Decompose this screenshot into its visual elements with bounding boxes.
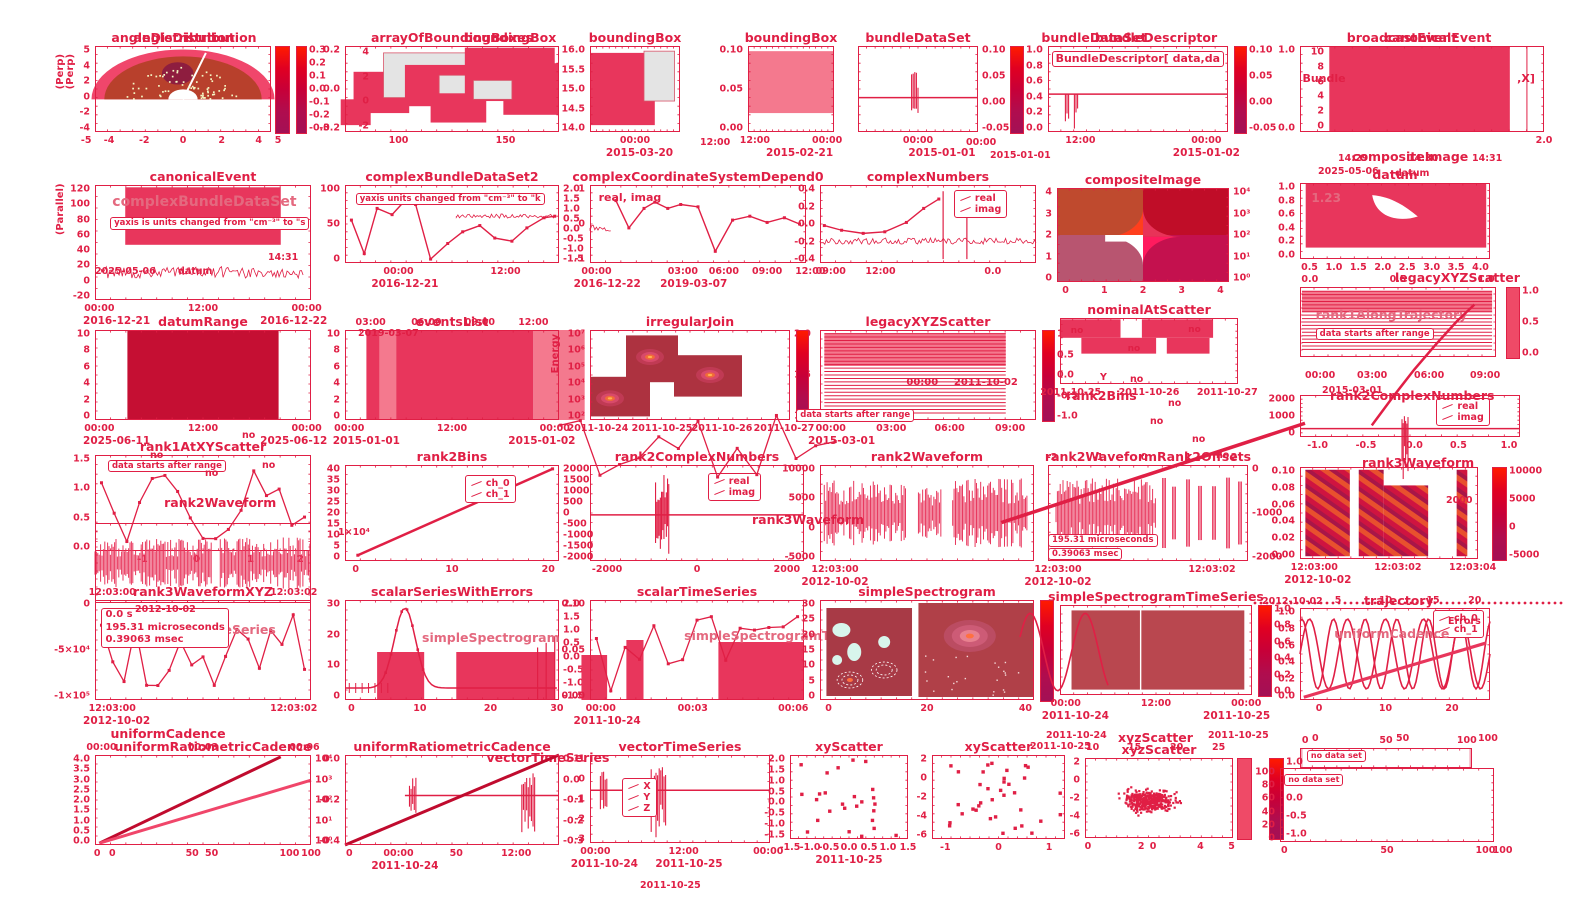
data-rect (473, 80, 512, 99)
speckle (948, 676, 949, 677)
scatter-point (1160, 805, 1162, 807)
speckle (188, 86, 190, 88)
data-rect (644, 51, 675, 101)
ytick: 2 (333, 394, 340, 405)
cyan-patch (847, 643, 861, 661)
ytick: 0 (333, 552, 340, 563)
xtick: 0 (995, 842, 1002, 853)
xtick: 12:03:00 (811, 564, 858, 575)
speckle (176, 72, 178, 74)
colorbar-tick: 0.0 (1522, 348, 1539, 359)
annotation-text: Bundle (1302, 72, 1345, 85)
data-rect (1081, 338, 1156, 354)
ylabel: Energy (550, 334, 561, 373)
ytick: 14.5 (562, 103, 585, 114)
stray-label: 2025-05-06 (95, 266, 156, 277)
ytick: 8 (83, 345, 90, 356)
scatter-point (1134, 796, 1136, 798)
scatter-point (847, 830, 850, 833)
xtick: 2 (1140, 285, 1147, 296)
ytick-right: 10³ (1233, 208, 1250, 219)
stray-label: 12:00 (700, 137, 730, 148)
scatter-point (1150, 796, 1152, 798)
stray-label: 2000 (1446, 495, 1472, 506)
scatter-point (1158, 800, 1160, 802)
speckle (141, 96, 143, 98)
ytick: 0.05 (562, 645, 585, 656)
annotation-text: uniformCadence (1334, 626, 1449, 641)
speckle (213, 94, 215, 96)
ytick: 0.2 (1278, 236, 1295, 247)
ytick-right: -1500 (563, 541, 593, 552)
legend-entry: Y (628, 792, 650, 803)
speckle (993, 691, 994, 692)
xtick: 0 (1281, 845, 1288, 856)
speckle (150, 74, 152, 76)
legend: ch_0ch_1 (465, 475, 516, 503)
axes-frame (591, 756, 770, 843)
scatter-point (1144, 794, 1146, 796)
scatter-point (1125, 799, 1127, 801)
scatter-point (1014, 827, 1017, 830)
scatter-point (1118, 797, 1120, 799)
marker (123, 680, 126, 683)
xtick: -1.5 (780, 842, 801, 853)
xtick-top: 50 (1379, 735, 1392, 746)
colorbar-tick: 5000 (1509, 494, 1535, 505)
xtick: 00:00 (1191, 135, 1221, 146)
xtick: 4 (1217, 285, 1224, 296)
marker (461, 230, 464, 233)
scatter-point (1170, 804, 1172, 806)
stray-label: 00:00 (966, 137, 996, 148)
ytick: 1.5 (73, 454, 90, 465)
marker (795, 457, 798, 460)
xtick: 0 (346, 848, 353, 859)
xtick: 1.0 (880, 842, 897, 853)
scatter-point (1154, 794, 1156, 796)
line-series (1001, 423, 1305, 522)
marker (411, 624, 414, 627)
xtick: 20 (1445, 703, 1458, 714)
ytick-right: 0.0 (563, 774, 580, 785)
plot-xyScatter (790, 755, 908, 839)
speckle (218, 90, 220, 92)
xaxis-date: 2016-12-21 (371, 278, 438, 290)
marker (823, 224, 826, 227)
blob (708, 374, 712, 376)
scatter-point (860, 800, 863, 803)
marker (609, 689, 612, 692)
ytick: 0.2 (1278, 674, 1295, 685)
marker (598, 474, 601, 477)
scatter-point (1059, 791, 1062, 794)
scatter-point (1002, 777, 1005, 780)
stray-label: 15 (1128, 742, 1141, 753)
stray-label: 14:31 (1472, 153, 1502, 164)
scatter-point (990, 762, 993, 765)
speckle (172, 76, 174, 78)
xtick: 00:00 (1051, 698, 1081, 709)
scatter-point (1127, 791, 1129, 793)
stray-label: 2011-10-24 (1046, 730, 1107, 741)
speckle (146, 88, 148, 90)
data-rect (1167, 338, 1210, 354)
marker (553, 215, 556, 218)
noise-trace (456, 214, 554, 218)
marker (657, 435, 660, 438)
panel-title-legacyXYZScatter: legacyXYZScatter (866, 314, 991, 329)
speckle (133, 98, 135, 100)
marker (422, 668, 425, 671)
scatter-point (841, 802, 844, 805)
scatter-point (1125, 802, 1127, 804)
speckle (165, 90, 167, 92)
colorbar-tick: 0.2 (1026, 107, 1043, 118)
ytick: 60 (77, 229, 90, 240)
speckle (210, 78, 212, 80)
stray-label: no (1192, 434, 1205, 445)
stray-label: legacyXYZScatter (1395, 270, 1520, 285)
xtick: 10 (413, 703, 426, 714)
ytick-inner: 4 (1317, 91, 1324, 102)
scatter-point (1165, 799, 1167, 801)
plot-boundingBox (748, 46, 834, 132)
stray-label: rank2Bins (1066, 388, 1137, 403)
ytick: 4 (333, 378, 340, 389)
stray-label: 2015-01-01 (990, 150, 1051, 161)
panel-title-angleDistribution: angleDistribution (133, 30, 256, 45)
stray-label: Errors (1448, 616, 1481, 627)
marker (376, 207, 379, 210)
ytick: 0.05 (720, 84, 743, 95)
ytick: 0.00 (562, 691, 585, 702)
scatter-point (871, 788, 874, 791)
speckle (223, 89, 225, 91)
marker (716, 476, 719, 479)
marker (163, 474, 166, 477)
marker (724, 659, 727, 662)
speckle (207, 95, 209, 97)
stray-label: 2012-10-02 (1262, 596, 1323, 607)
xaxis-date: 2012-10-02 (1024, 576, 1091, 588)
scatter-point (1137, 800, 1139, 802)
colorbar-tick: -5000 (1509, 550, 1539, 561)
speckle (155, 76, 157, 78)
scatter-point (1136, 806, 1138, 808)
ytick: 5000 (789, 493, 815, 504)
data-rect (1329, 46, 1510, 132)
speckle (956, 681, 957, 682)
stray-label: 1×10⁴ (338, 527, 370, 538)
ytick: 0.0 (798, 219, 815, 230)
ytick: 40 (327, 464, 340, 475)
marker (905, 221, 908, 224)
scatter-point (1135, 791, 1137, 793)
trajectory-dot (1356, 602, 1359, 605)
marker (579, 419, 582, 422)
marker (643, 207, 646, 210)
scatter-point (1019, 808, 1022, 811)
xtick: 100 (301, 848, 321, 859)
ytick-right: 1.5 (563, 612, 580, 623)
stray-label: datum (1395, 168, 1429, 179)
axes-frame (791, 756, 908, 839)
xaxis-date: 2016-12-22 (574, 278, 641, 290)
plot-diagonal-decor (995, 420, 1305, 528)
scatter-point (1150, 805, 1152, 807)
panel-title-xyScatter: xyScatter (815, 739, 883, 754)
xtick: 3 (1178, 285, 1185, 296)
ytick: -6 (1069, 829, 1080, 840)
ytick: 0.00 (720, 123, 743, 134)
legend-label: imag (1457, 412, 1483, 423)
ytick: -1.0 (764, 819, 785, 830)
scatter-point (1059, 813, 1062, 816)
annotation-text: no (1071, 326, 1084, 336)
speckle (235, 96, 237, 98)
colorbar (1258, 605, 1272, 697)
stray-label: 2025-05-06 (1318, 166, 1379, 177)
xtick: 1.0 (1501, 440, 1518, 451)
xtick: -0.5 (819, 842, 840, 853)
marker (493, 237, 496, 240)
ytick: 4 (83, 378, 90, 389)
xtick-top: 12:03:02 (270, 587, 317, 598)
speckle (925, 655, 926, 656)
scatter-point (1132, 804, 1134, 806)
xtick: 4 (1197, 841, 1204, 852)
ytick: 0.0 (768, 797, 785, 808)
scatter-point (989, 817, 992, 820)
axes-frame (933, 756, 1065, 839)
ytick: 0.0 (323, 84, 340, 95)
speckle (202, 75, 204, 77)
scatter-point (825, 771, 828, 774)
marker (666, 207, 669, 210)
xtick: 00:00 (581, 266, 611, 277)
scatter-point (971, 807, 974, 810)
xtick: 00:00 (383, 266, 413, 277)
plot-angleDistribution (95, 46, 271, 132)
xtick: 0 (1062, 285, 1069, 296)
ytick-right: 10⁴ (1233, 187, 1250, 198)
trajectory-dot (1344, 602, 1347, 605)
scatter-point (957, 770, 960, 773)
scatter-point (855, 804, 858, 807)
scatter-point (1130, 786, 1132, 788)
speckle (138, 88, 140, 90)
scatter-point (816, 819, 819, 822)
legend-entry: imag (960, 204, 1001, 215)
scatter-point (1138, 790, 1140, 792)
ytick: 5 (333, 541, 340, 552)
xtick: 10 (1379, 703, 1392, 714)
xtick: 00:00 (586, 703, 616, 714)
speckle (163, 74, 165, 76)
marker (638, 658, 641, 661)
stray-label: 2011-10-25 (1208, 730, 1269, 741)
ytick: 2 (83, 394, 90, 405)
ytick: 0.0 (1278, 250, 1295, 261)
colorbar-tick: 10000 (1509, 466, 1542, 477)
ytick: 80 (77, 214, 90, 225)
blob (648, 356, 652, 358)
panel-title-irregularJoin: irregularJoin (646, 314, 734, 329)
xtick: 5 (275, 135, 282, 146)
trend-line (99, 780, 311, 843)
ytick-right: 10¹ (315, 815, 332, 826)
plot-legacyXYZScatter (820, 330, 1036, 420)
stray-label: no (262, 460, 275, 471)
xtick: 03:00 (876, 423, 906, 434)
cyan-patch (832, 655, 842, 665)
legend-label: ch_1 (486, 489, 510, 500)
plot-uniformRatiometricCadence (95, 755, 311, 845)
speckle (159, 95, 161, 97)
plot-arrayOfBoundingBoxes (345, 46, 559, 132)
ytick-right: 10³ (315, 774, 332, 785)
speckle (955, 657, 956, 658)
xtick: 1.0 (1326, 262, 1343, 273)
ytick-inner: 0 (1317, 121, 1324, 132)
tick-marks (790, 755, 908, 839)
xtick: 100 (1493, 845, 1513, 856)
legend-label: imag (729, 487, 755, 498)
scatter-point (815, 798, 818, 801)
marker (151, 477, 154, 480)
plot-scalarSeriesWithErrors (345, 600, 559, 700)
panel-title-rank2Waveform: rank2Waveform (871, 449, 983, 464)
stray-label: no (205, 468, 218, 479)
stray-label: trajectory (1364, 593, 1434, 608)
xtick: 100 (279, 848, 299, 859)
scatter-point (1148, 798, 1150, 800)
speckle (998, 666, 999, 667)
speckle (967, 656, 968, 657)
spectrogram-block (826, 608, 912, 696)
plot-sine-decor (1020, 608, 1108, 696)
marker (189, 516, 192, 519)
ytick: -0.2 (319, 123, 340, 134)
xtick: 0 (94, 848, 101, 859)
speckle (996, 680, 997, 681)
ytick: -2 (1069, 793, 1080, 804)
xtick: 0.0 (1406, 440, 1423, 451)
panel-title-canonicalEvent: canonicalEvent (1385, 30, 1492, 45)
panel-title-bundleDescriptor: bundleDescriptor (1095, 30, 1217, 45)
marker (796, 615, 799, 618)
xaxis-date: 2011-10-25 (1203, 710, 1270, 722)
scatter-point (1169, 799, 1171, 801)
scatter-point (1145, 797, 1147, 799)
scatter-point (873, 802, 876, 805)
scatter-point (1133, 800, 1135, 802)
stray-label: compositeImage (1352, 149, 1468, 164)
scatter-point (1165, 806, 1167, 808)
data-rect (127, 330, 278, 420)
ytick-right: -2000 (563, 552, 593, 563)
scatter-point (860, 835, 863, 838)
ytick: 10⁶ (568, 345, 585, 356)
ytick: 2000 (1269, 394, 1295, 405)
ytick: 0.8 (1278, 195, 1295, 206)
ytick: 0.8 (1278, 623, 1295, 634)
ytick: 10 (327, 660, 340, 671)
stray-label: 14:31 (268, 252, 298, 263)
scatter-point (1130, 794, 1132, 796)
ytick: 0.0 (73, 542, 90, 553)
plot-rank3Waveform (1300, 467, 1478, 559)
scatter-point (1131, 808, 1133, 810)
scatter-point (1140, 812, 1142, 814)
xtick-top: 100 (1457, 735, 1477, 746)
marker (834, 440, 837, 443)
ytick: 14.0 (562, 123, 585, 134)
stray-label: no (1216, 450, 1229, 461)
marker (510, 240, 513, 243)
colorbar (275, 46, 290, 134)
speckle (194, 87, 196, 89)
xaxis-date: 2012-10-02 (1284, 574, 1351, 586)
scatter-point (1007, 783, 1010, 786)
speckle (925, 671, 926, 672)
colorbar (1492, 467, 1507, 561)
scatter-point (1153, 805, 1155, 807)
xtick: 00:00 (812, 135, 842, 146)
colorbar-tick: 0.5 (1522, 317, 1539, 328)
xtick: 50 (186, 848, 199, 859)
legend-label: Z (643, 803, 650, 814)
ytick: 6 (83, 361, 90, 372)
stray-label: 09:00 (1470, 370, 1500, 381)
legend-line-icon (628, 805, 639, 812)
scatter-point (1002, 794, 1005, 797)
marker (280, 643, 283, 646)
scatter-point (977, 804, 980, 807)
panel-title-bundleDataSet: bundleDataSet (865, 30, 970, 45)
xtick: -1.0 (800, 842, 821, 853)
data-rect (1060, 319, 1121, 337)
xtick: 20 (484, 703, 497, 714)
marker (627, 226, 630, 229)
marker (937, 198, 940, 201)
scatter-point (999, 789, 1002, 792)
stray-label: no (1150, 416, 1163, 427)
xtick: 1 (1046, 842, 1053, 853)
spectrogram-block (1457, 470, 1468, 556)
scatter-point (871, 819, 874, 822)
ytick: 0 (1073, 775, 1080, 786)
xtick: 20 (920, 703, 933, 714)
legend-entry: ch_0 (471, 478, 510, 489)
ytick: 0 (1045, 273, 1052, 284)
trajectory-dot (1482, 602, 1485, 605)
ytick: -1×10⁵ (54, 691, 90, 702)
scatter-point (1039, 819, 1042, 822)
xtick: 0.5 (861, 842, 878, 853)
ytick: 1 (578, 754, 585, 765)
xtick: 0.0 (841, 842, 858, 853)
xaxis-date: 2011-10-25 (655, 858, 722, 870)
scatter-point (1168, 795, 1170, 797)
annotation: no data set (1307, 750, 1366, 762)
xtick: 2.0 (1536, 135, 1553, 146)
speckle (212, 94, 214, 96)
scatter-point (1174, 807, 1176, 809)
legend-line-icon (628, 783, 639, 790)
scatter-point (853, 795, 856, 798)
